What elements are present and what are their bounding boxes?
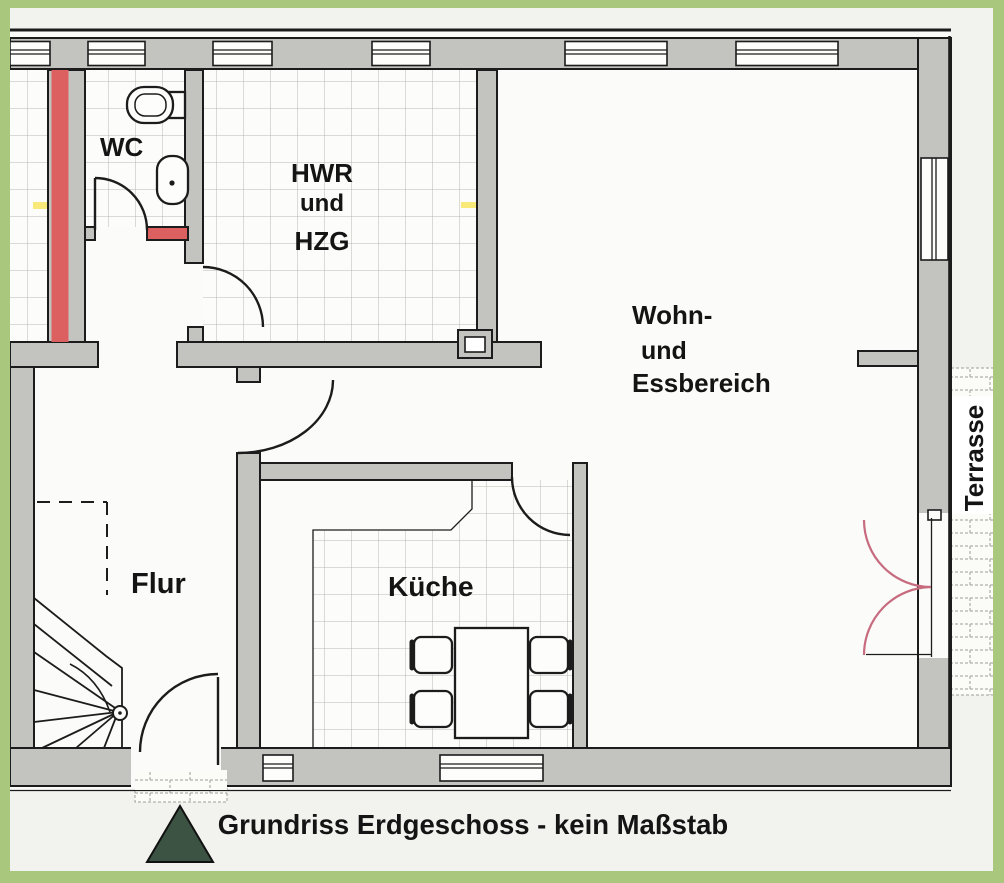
middle-wall-left	[10, 342, 98, 367]
dining-table-icon	[455, 628, 528, 738]
floor-plan-scan: WC HWR und HZG Wohn- und Essbereich Flur…	[0, 0, 1004, 883]
hwr-right-wall	[477, 70, 497, 342]
chair-icon	[414, 691, 452, 727]
chair-icon	[414, 637, 452, 673]
room-label-terrasse: Terrasse	[959, 405, 989, 512]
wohnen-line3: Essbereich	[632, 368, 771, 398]
hwr-line2: und	[300, 190, 344, 217]
sink-icon	[157, 156, 188, 204]
floor-plan-svg: WC HWR und HZG Wohn- und Essbereich Flur…	[0, 0, 1004, 883]
left-exterior-wall-lower	[10, 367, 34, 748]
flur-kueche-wall	[237, 453, 260, 748]
sink-drain-icon	[169, 180, 174, 185]
kueche-top-wall	[260, 463, 512, 480]
plan-caption: Grundriss Erdgeschoss - kein Maßstab	[218, 809, 728, 840]
hwr-line3: HZG	[295, 226, 350, 256]
middle-wall-right-stub	[858, 351, 918, 366]
kueche-right-wall	[573, 463, 587, 748]
wohnen-line1: Wohn-	[632, 300, 712, 330]
room-label-hwr: HWR und HZG	[291, 158, 353, 256]
window	[921, 158, 948, 260]
room-label-kueche: Küche	[388, 571, 474, 602]
terrace-door-opening	[919, 513, 950, 658]
chair-icon	[530, 637, 568, 673]
chair-icon	[530, 691, 568, 727]
room-label-wc: WC	[100, 132, 144, 162]
wohnen-line2: und	[641, 337, 687, 365]
room-label-flur: Flur	[131, 568, 186, 600]
hwr-line1: HWR	[291, 158, 353, 188]
entrance-step-paving-top	[135, 770, 227, 790]
